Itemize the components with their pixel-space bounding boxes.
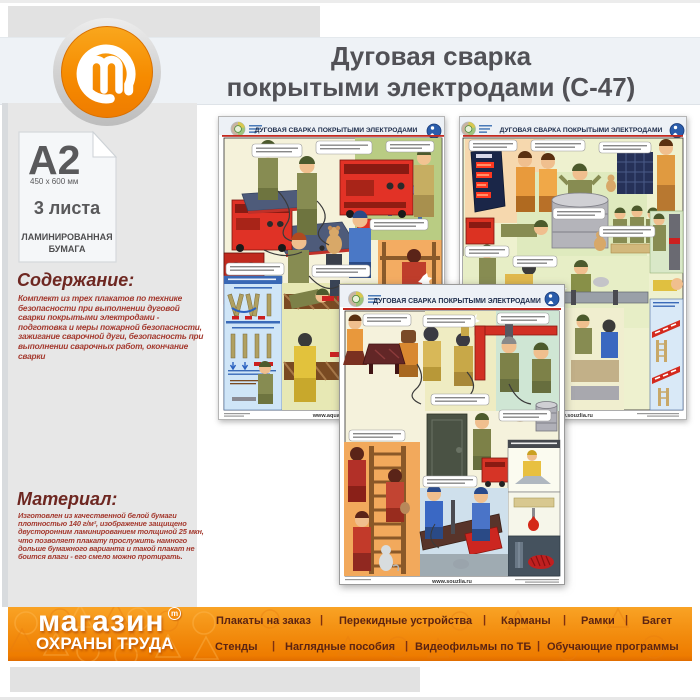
svg-text:www.souzlia.ru: www.souzlia.ru: [431, 579, 472, 585]
svg-text:ДУГОВАЯ СВАРКА ПОКРЫТЫМИ ЭЛЕКТ: ДУГОВАЯ СВАРКА ПОКРЫТЫМИ ЭЛЕКТРОДАМИ: [500, 127, 663, 134]
svg-text:ДУГОВАЯ СВАРКА ПОКРЫТЫМИ ЭЛЕКТ: ДУГОВАЯ СВАРКА ПОКРЫТЫМИ ЭЛЕКТРОДАМИ: [373, 298, 541, 305]
svg-text:ДУГОВАЯ СВАРКА ПОКРЫТЫМИ ЭЛЕКТ: ДУГОВАЯ СВАРКА ПОКРЫТЫМИ ЭЛЕКТРОДАМИ: [255, 127, 418, 134]
